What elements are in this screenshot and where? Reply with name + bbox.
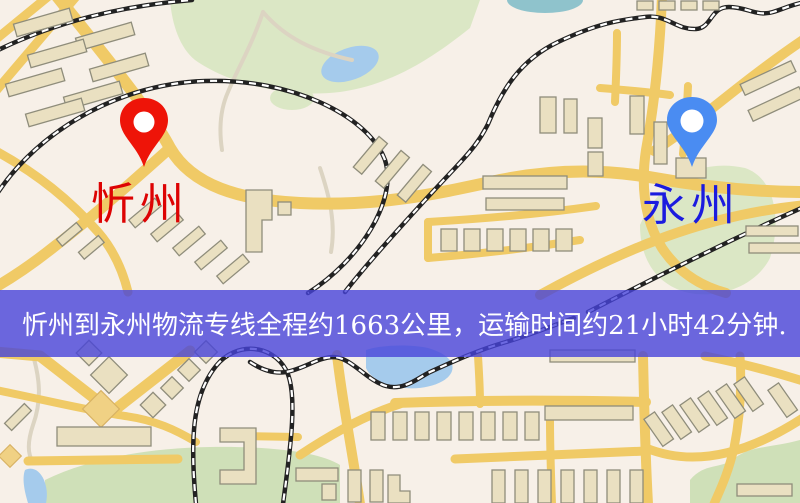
map-screenshot: 忻州 永州 忻州到永州物流专线全程约1663公里，运输时间约21小时42分钟. [0, 0, 800, 503]
origin-label: 忻州 [91, 179, 189, 230]
destination-label: 永州 [642, 180, 740, 231]
route-info-text: 忻州到永州物流专线全程约1663公里，运输时间约21小时42分钟. [22, 305, 787, 342]
destination-pin[interactable] [667, 97, 717, 167]
route-info-banner: 忻州到永州物流专线全程约1663公里，运输时间约21小时42分钟. [0, 290, 800, 357]
destination-pin-hole [681, 110, 704, 133]
origin-pin-hole [134, 112, 155, 133]
map-canvas: 忻州 永州 [0, 0, 800, 503]
